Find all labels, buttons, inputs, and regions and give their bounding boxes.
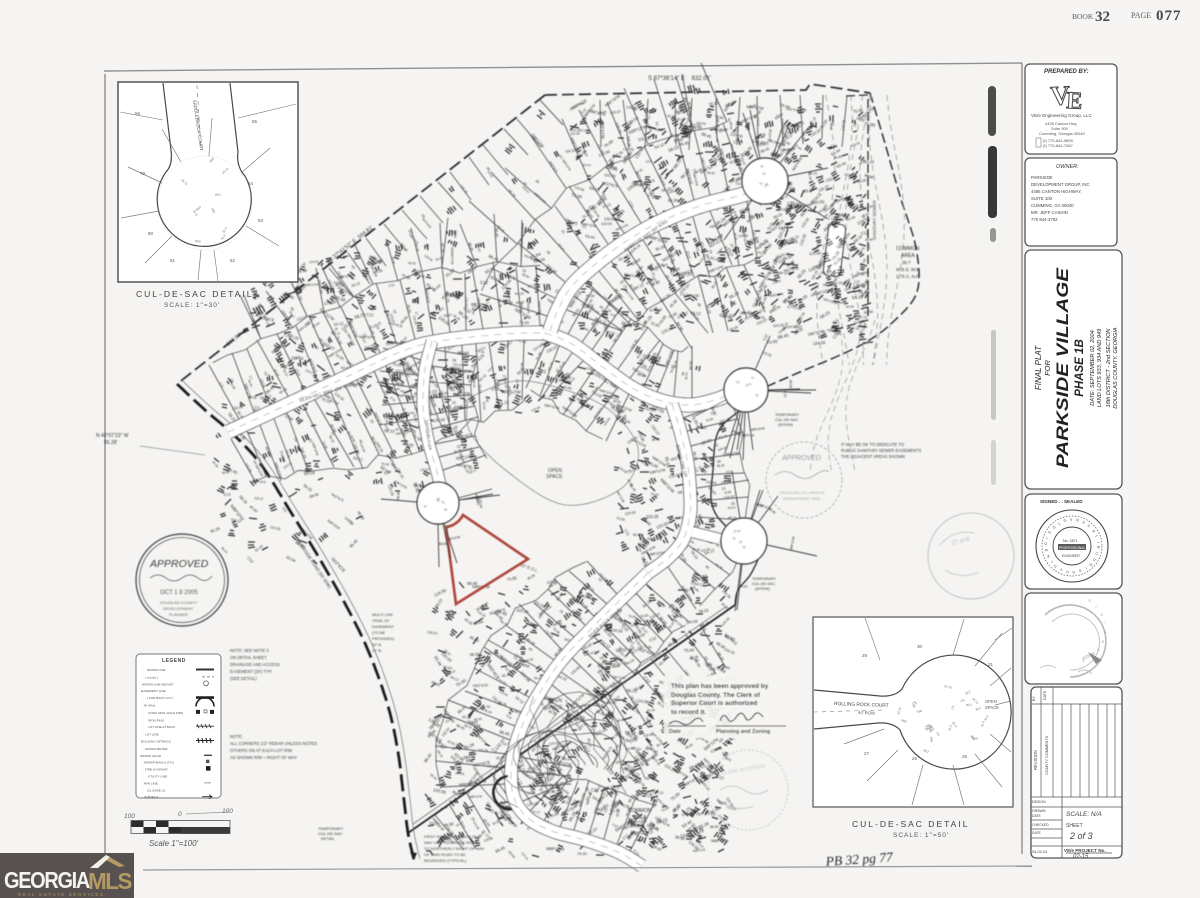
svg-text:DEVELOPMENT: DEVELOPMENT <box>163 606 194 611</box>
svg-text:PREPARED BY:: PREPARED BY: <box>1044 69 1089 75</box>
svg-text:AREA: AREA <box>633 815 647 821</box>
svg-text:TEMPORARY: TEMPORARY <box>752 577 776 581</box>
svg-text:R: R <box>1096 546 1100 549</box>
svg-text:DATE: DATE <box>1032 814 1042 818</box>
svg-text:54.12: 54.12 <box>836 212 844 217</box>
svg-text:55: 55 <box>252 119 258 124</box>
svg-text:C12: C12 <box>480 280 489 285</box>
svg-text:2 of 3: 2 of 3 <box>1069 831 1093 841</box>
svg-text:N 46*07'23" W: N 46*07'23" W <box>96 433 129 439</box>
svg-text:80: 80 <box>148 231 154 236</box>
svg-text:30.7: 30.7 <box>902 260 911 265</box>
svg-text:124.56: 124.56 <box>309 260 319 264</box>
svg-text:VE/e Engineering Group, LLC: VE/e Engineering Group, LLC <box>1031 113 1092 118</box>
svg-text:DRAWN: DRAWN <box>1032 809 1046 813</box>
svg-text:RESERVED (TYPICAL): RESERVED (TYPICAL) <box>424 858 467 863</box>
svg-text:REVISION: REVISION <box>1033 750 1038 770</box>
svg-text:FINAL PLAT: FINAL PLAT <box>1034 345 1043 390</box>
svg-text:IRON PINS: IRON PINS <box>148 718 164 722</box>
svg-text:MLS: MLS <box>88 868 132 894</box>
svg-text:63.44: 63.44 <box>583 163 591 167</box>
svg-text:30' B.S. W.B: 30' B.S. W.B <box>630 823 655 828</box>
svg-text:45.00: 45.00 <box>645 747 654 751</box>
svg-text:DATE: DATE <box>1043 690 1047 700</box>
svg-text:WAY LINE RIVERSIDE ROAD: WAY LINE RIVERSIDE ROAD <box>424 840 478 845</box>
svg-text:ALL CORNERS 1/2" REBAR UNLESS: ALL CORNERS 1/2" REBAR UNLESS NOTED <box>230 741 317 746</box>
svg-text:54: 54 <box>248 181 254 186</box>
svg-text:No. 2871: No. 2871 <box>1063 539 1078 543</box>
svg-text:Douglas County. The Clerk of: Douglas County. The Clerk of <box>671 692 761 699</box>
svg-text:100: 100 <box>222 808 233 815</box>
svg-text:GEORGIA: GEORGIA <box>4 867 90 893</box>
svg-text:( FOR BACK LOT ): ( FOR BACK LOT ) <box>147 696 173 700</box>
svg-text:58.23: 58.23 <box>616 647 628 653</box>
svg-text:C12: C12 <box>366 312 375 318</box>
svg-text:AREA: AREA <box>901 253 915 259</box>
svg-text:FIRE HYDRANT: FIRE HYDRANT <box>145 768 168 772</box>
svg-text:EASEMENT LINE: EASEMENT LINE <box>141 689 166 693</box>
svg-text:1.75 C. N.F: 1.75 C. N.F <box>896 274 919 279</box>
svg-text:OPEN: OPEN <box>548 698 563 704</box>
svg-text:Planning and Zoning: Planning and Zoning <box>716 729 770 735</box>
svg-text:65.64: 65.64 <box>829 122 833 130</box>
svg-text:VE/e PROJECT No.: VE/e PROJECT No. <box>1064 848 1106 853</box>
svg-text:Scale 1"=100': Scale 1"=100' <box>149 839 199 848</box>
svg-text:Date: Date <box>669 729 681 735</box>
svg-text:THE ADJACENT AREAS SHOWN: THE ADJACENT AREAS SHOWN <box>841 454 905 459</box>
svg-text:88.90: 88.90 <box>710 825 719 829</box>
svg-text:79: 79 <box>140 171 146 176</box>
svg-text:TEMPORARY: TEMPORARY <box>775 413 799 417</box>
svg-text:120.00: 120.00 <box>601 222 612 226</box>
svg-text:88.90: 88.90 <box>729 122 733 130</box>
svg-text:95.28': 95.28' <box>104 440 118 446</box>
svg-text:75.00: 75.00 <box>684 647 695 653</box>
svg-text:LOT LINE AT BACK: LOT LINE AT BACK <box>148 725 176 729</box>
svg-text:to record it.: to record it. <box>671 709 706 716</box>
svg-text:27: 27 <box>864 751 870 756</box>
svg-text:58.23: 58.23 <box>384 428 395 434</box>
svg-text:50' ROW: 50' ROW <box>858 710 875 716</box>
svg-text:FOR: FOR <box>1043 360 1052 376</box>
svg-text:DRAINAGE AND ACCESS: DRAINAGE AND ACCESS <box>230 662 280 667</box>
svg-text:ENGINEER: ENGINEER <box>1062 554 1080 558</box>
svg-text:WATER LINE: WATER LINE <box>147 668 166 672</box>
svg-text:COUNTY COMMENTS: COUNTY COMMENTS <box>1045 735 1049 775</box>
svg-text:APPROVED: APPROVED <box>781 455 821 462</box>
svg-text:02-15: 02-15 <box>1073 854 1089 860</box>
svg-text:( county ): ( county ) <box>145 675 158 679</box>
svg-text:98.45: 98.45 <box>396 491 401 500</box>
svg-text:IT MAY BE OK TO DEDICATE TO: IT MAY BE OK TO DEDICATE TO <box>841 442 905 447</box>
svg-text:OPEN: OPEN <box>985 699 997 704</box>
svg-text:OF SAID ROAD TO BE: OF SAID ROAD TO BE <box>424 852 466 857</box>
svg-text:N88*10'W: N88*10'W <box>305 283 319 287</box>
svg-text:WATER VALVE: WATER VALVE <box>140 754 161 758</box>
svg-text:0: 0 <box>178 811 182 818</box>
svg-text:88.90: 88.90 <box>821 271 831 275</box>
svg-text:DEVELOPMENT GROUP, INC: DEVELOPMENT GROUP, INC <box>1031 182 1090 187</box>
svg-text:(SEE DETAIL): (SEE DETAIL) <box>230 676 257 681</box>
svg-text:MULTI USE: MULTI USE <box>372 612 393 617</box>
svg-text:35.2: 35.2 <box>966 703 972 707</box>
svg-text:NOTE: SEE NOTE 3: NOTE: SEE NOTE 3 <box>230 648 269 653</box>
svg-text:(TO BE: (TO BE <box>372 630 386 635</box>
svg-text:PARKSIDE VILLAGE: PARKSIDE VILLAGE <box>1054 267 1072 468</box>
svg-text:58.23: 58.23 <box>408 261 416 265</box>
svg-text:88.90: 88.90 <box>463 399 467 408</box>
svg-text:BUILDING SETBACK: BUILDING SETBACK <box>141 740 172 744</box>
svg-text:CUL-DE-SAC: CUL-DE-SAC <box>775 418 798 422</box>
svg-text:W.B.S. W.B: W.B.S. W.B <box>896 267 919 272</box>
svg-text:(50'R/W): (50'R/W) <box>755 587 771 591</box>
svg-text:120.00: 120.00 <box>570 131 580 136</box>
svg-text:OTHERS ON AT EACH LOT R/W: OTHERS ON AT EACH LOT R/W <box>230 748 292 753</box>
svg-text:65.64: 65.64 <box>846 305 854 309</box>
svg-text:FIRST 50' ALONG RIGHT OF: FIRST 50' ALONG RIGHT OF <box>424 834 477 839</box>
svg-text:R/W LINE: R/W LINE <box>144 781 158 785</box>
svg-text:MR. JEFF CASHIN: MR. JEFF CASHIN <box>1031 210 1068 215</box>
svg-text:SIGNED . . SEALED: SIGNED . . SEALED <box>1040 499 1083 504</box>
svg-text:N02*41'E: N02*41'E <box>473 683 489 688</box>
svg-text:BY: BY <box>1032 696 1036 701</box>
svg-text:DEPARTMENT 2005: DEPARTMENT 2005 <box>783 496 821 501</box>
svg-text:OWNER:: OWNER: <box>1056 164 1079 170</box>
svg-text:WATER METER: WATER METER <box>145 747 168 751</box>
svg-text:51: 51 <box>170 258 176 263</box>
svg-text:CUL-DE-SAC DETAIL: CUL-DE-SAC DETAIL <box>136 289 253 299</box>
svg-text:C/L EASE L/L: C/L EASE L/L <box>147 788 166 792</box>
svg-text:BOOK: BOOK <box>1072 12 1094 21</box>
svg-text:25: 25 <box>962 754 968 759</box>
svg-text:PHASE 1B: PHASE 1B <box>1074 339 1086 397</box>
svg-text:OCT 1 8 2005: OCT 1 8 2005 <box>160 590 198 596</box>
svg-text:19: 19 <box>655 122 659 126</box>
svg-text:C12: C12 <box>224 492 231 497</box>
svg-text:R50: R50 <box>972 736 978 740</box>
svg-text:4485 CANTON HIGHWAY,: 4485 CANTON HIGHWAY, <box>1031 189 1082 194</box>
svg-text:30: 30 <box>917 644 923 649</box>
svg-text:30' B.: 30' B. <box>372 642 382 647</box>
svg-text:120.00: 120.00 <box>789 380 793 390</box>
svg-text:26: 26 <box>912 756 918 761</box>
svg-text:APPROVED: APPROVED <box>149 558 209 570</box>
svg-text:53: 53 <box>258 218 264 223</box>
svg-text:S 87*36'14" E 632.01': S 87*36'14" E 632.01' <box>648 76 711 82</box>
svg-text:88.90: 88.90 <box>439 542 447 546</box>
svg-text:DOUGLAS COUNTY, GEORGIA: DOUGLAS COUNTY, GEORGIA <box>1113 327 1119 408</box>
svg-text:88.90: 88.90 <box>707 171 715 175</box>
svg-text:SCALE: N/A: SCALE: N/A <box>1066 811 1102 818</box>
svg-text:COMMON: COMMON <box>896 246 920 252</box>
svg-text:SPACE: SPACE <box>985 705 999 710</box>
svg-text:CUMMING, GA 30040: CUMMING, GA 30040 <box>1031 203 1074 208</box>
svg-text:SHEET: SHEET <box>1066 823 1083 829</box>
svg-text:S89*12'W: S89*12'W <box>469 794 483 799</box>
svg-text:E: E <box>1066 88 1083 115</box>
svg-text:PLANNER: PLANNER <box>169 612 188 617</box>
svg-text:CUL-DE-SAC DETAIL: CUL-DE-SAC DETAIL <box>852 819 969 829</box>
svg-text:124.56: 124.56 <box>738 234 748 238</box>
svg-text:C12: C12 <box>854 279 861 284</box>
svg-text:REAL ESTATE SERVICES: REAL ESTATE SERVICES <box>18 892 105 897</box>
svg-text:WATER MAIN A (T/C): WATER MAIN A (T/C) <box>144 761 174 765</box>
svg-text:31: 31 <box>988 662 994 667</box>
svg-text:DATE: DATE <box>1032 831 1042 835</box>
svg-text:CUL-DE-SAC: CUL-DE-SAC <box>752 582 775 586</box>
svg-text:AS SHOWN R/W = RIGHT OF WAY: AS SHOWN R/W = RIGHT OF WAY <box>230 755 297 760</box>
svg-text:110.25: 110.25 <box>646 514 659 519</box>
svg-text:SPACE: SPACE <box>546 705 563 711</box>
svg-text:R50: R50 <box>215 193 221 197</box>
svg-text:75.00: 75.00 <box>577 851 588 856</box>
svg-text:95.28: 95.28 <box>471 302 482 307</box>
svg-text:54.12: 54.12 <box>728 505 736 510</box>
svg-text:100: 100 <box>124 813 135 820</box>
svg-text:SCALE: 1"=30': SCALE: 1"=30' <box>164 302 220 309</box>
svg-text:770 844-3782: 770 844-3782 <box>1031 217 1058 222</box>
svg-text:54.12: 54.12 <box>515 292 524 296</box>
svg-text:58.23: 58.23 <box>625 730 637 735</box>
svg-text:UTILITY LINE: UTILITY LINE <box>148 775 167 779</box>
svg-text:2.5A C. N.F: 2.5A C. N.F <box>630 830 654 835</box>
svg-text:DESIGN: DESIGN <box>1032 800 1046 804</box>
svg-text:PARKSIDE: PARKSIDE <box>1031 175 1053 180</box>
svg-text:95.28: 95.28 <box>476 778 487 784</box>
svg-text:EASEMENT (20') TYP.: EASEMENT (20') TYP. <box>230 669 272 674</box>
svg-text:(50'R/W): (50'R/W) <box>778 423 794 427</box>
svg-text:LOT LINE: LOT LINE <box>145 733 159 737</box>
svg-text:88.90: 88.90 <box>692 125 703 130</box>
svg-text:DETAIL: DETAIL <box>321 836 335 841</box>
svg-text:COMMON: COMMON <box>628 808 652 814</box>
svg-text:ON DETAIL SHEET: ON DETAIL SHEET <box>230 655 267 660</box>
svg-text:SANITARY SEWER: SANITARY SEWER <box>872 199 877 240</box>
svg-text:45.00: 45.00 <box>684 372 689 380</box>
svg-text:PROFESSIONAL: PROFESSIONAL <box>1059 546 1085 550</box>
svg-text:29: 29 <box>862 653 868 658</box>
svg-text:C12: C12 <box>589 204 598 210</box>
svg-text:This plan has been approved by: This plan has been approved by <box>671 683 769 690</box>
svg-text:DOUGLAS COUNTY: DOUGLAS COUNTY <box>160 600 198 605</box>
svg-text:04-02-04: 04-02-04 <box>1032 850 1047 854</box>
svg-text:Cumming, Georgia 30040: Cumming, Georgia 30040 <box>1039 131 1086 136</box>
svg-text:TO NORTHERLY RIGHT OF WAY: TO NORTHERLY RIGHT OF WAY <box>424 846 485 851</box>
svg-text:52: 52 <box>230 258 236 263</box>
svg-text:47: 47 <box>751 376 755 380</box>
svg-text:SUITE 100: SUITE 100 <box>1031 196 1053 201</box>
svg-text:63.44: 63.44 <box>482 402 487 410</box>
svg-text:DATE: SEPTEMBER 02, 2004: DATE: SEPTEMBER 02, 2004 <box>1090 330 1096 405</box>
svg-text:SCALE: 1"=50': SCALE: 1"=50' <box>893 832 949 839</box>
svg-text:PUBLIC SANITARY SEWER EASEMENT: PUBLIC SANITARY SEWER EASEMENTS <box>841 448 921 453</box>
svg-text:Superior Court is authorized: Superior Court is authorized <box>671 700 757 707</box>
svg-text:CHECKED: CHECKED <box>1032 823 1049 827</box>
svg-text:LAND LOTS 933, 934 AND 94: LAND LOTS 933, 934 AND 949 <box>1097 329 1103 407</box>
svg-text:32: 32 <box>1095 9 1110 25</box>
svg-text:45.00: 45.00 <box>865 237 874 242</box>
svg-text:95.28: 95.28 <box>717 463 725 468</box>
svg-text:NOTE:: NOTE: <box>230 734 243 739</box>
svg-text:WATER LINE ABOVE?: WATER LINE ABOVE? <box>142 682 174 686</box>
svg-text:EASEMENT: EASEMENT <box>372 624 395 629</box>
svg-text:LEGEND: LEGEND <box>162 658 186 664</box>
svg-text:CONC MON (AXLE FND): CONC MON (AXLE FND) <box>148 711 183 715</box>
svg-text:54.12: 54.12 <box>858 315 867 320</box>
svg-text:(f) 770-844-7067: (f) 770-844-7067 <box>1043 143 1074 148</box>
svg-text:17' B.: 17' B. <box>372 648 382 653</box>
svg-text:G: G <box>1044 542 1048 545</box>
svg-text:SPACE: SPACE <box>546 474 563 480</box>
svg-text:TRAIL 20': TRAIL 20' <box>372 618 390 623</box>
svg-text:SUBJECT: SUBJECT <box>144 795 158 799</box>
svg-text:077: 077 <box>1156 8 1182 24</box>
svg-text:R/ WALL: R/ WALL <box>144 704 157 708</box>
svg-text:DOUGLAS CO. HEALTH: DOUGLAS CO. HEALTH <box>780 490 824 495</box>
svg-text:R50: R50 <box>195 239 201 244</box>
svg-text:PROVIDED): PROVIDED) <box>372 636 395 641</box>
svg-text:PAGE: PAGE <box>1131 11 1151 20</box>
svg-text:110.25: 110.25 <box>863 160 874 164</box>
svg-text:70.00: 70.00 <box>519 320 530 325</box>
svg-text:N88*10'W: N88*10'W <box>450 251 454 265</box>
svg-text:18th DISTRICT - 2nd SECTIO: 18th DISTRICT - 2nd SECTION <box>1106 328 1112 408</box>
